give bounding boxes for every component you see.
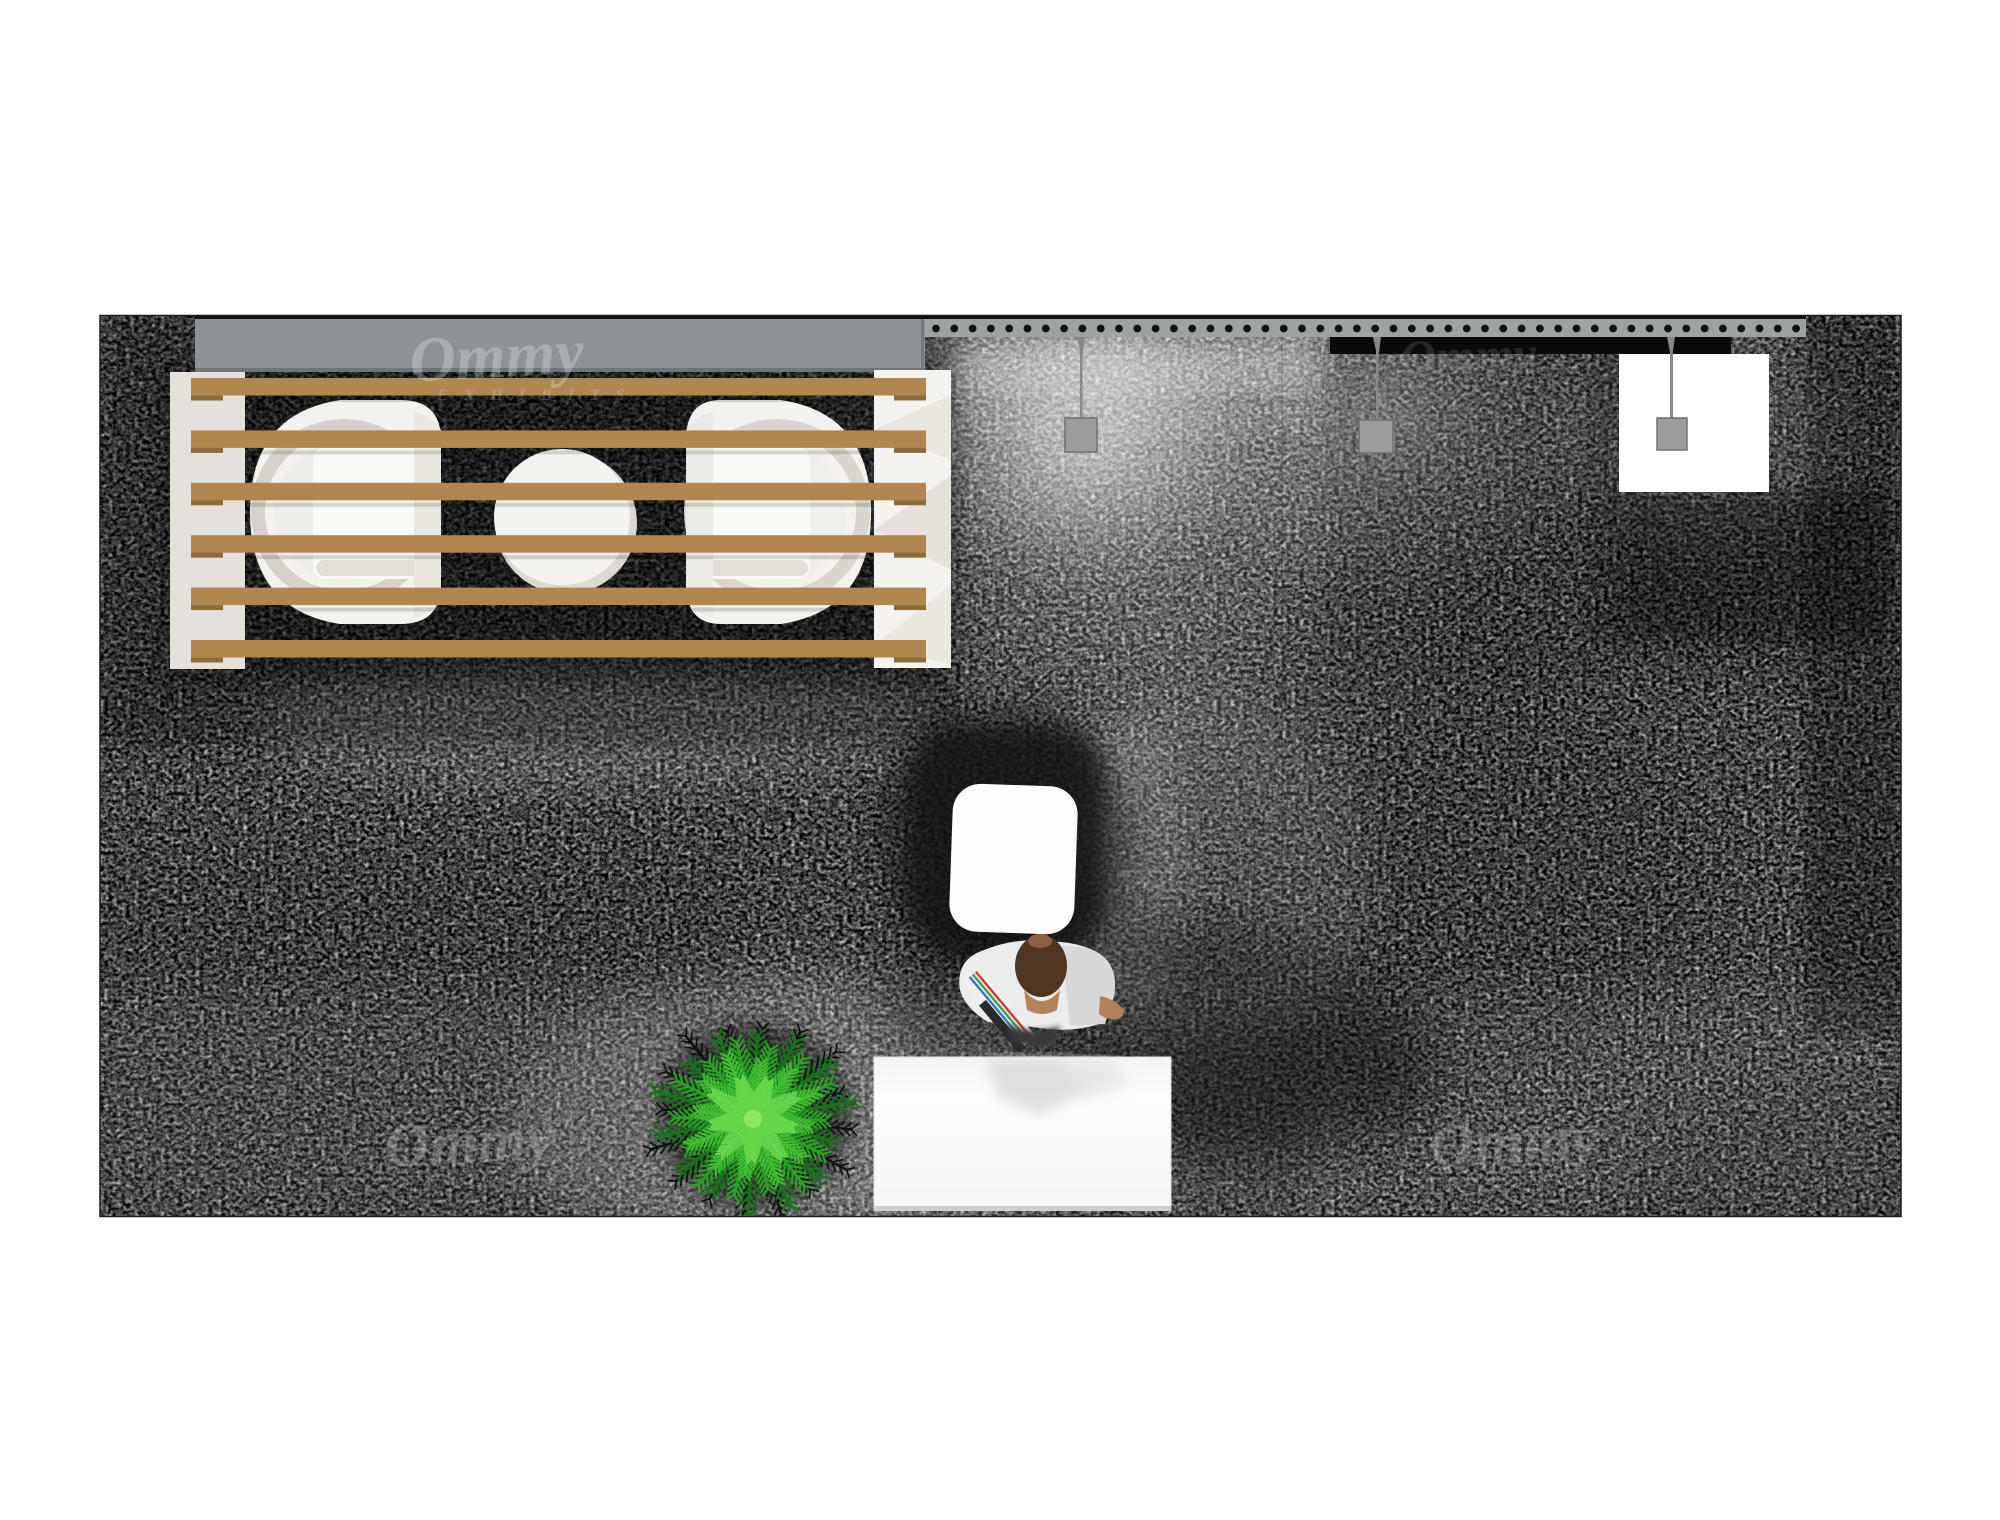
svg-text:E X H I B I T S: E X H I B I T S [1446, 1173, 1606, 1188]
svg-text:Ommy: Ommy [1428, 1104, 1601, 1181]
svg-text:Ommy: Ommy [1399, 325, 1538, 386]
svg-text:Ommy: Ommy [408, 316, 586, 396]
svg-text:Ommy: Ommy [383, 1104, 556, 1181]
svg-text:E X H I B I T S: E X H I B I T S [401, 1173, 561, 1188]
svg-text:E X H I B I T S: E X H I B I T S [436, 387, 631, 404]
